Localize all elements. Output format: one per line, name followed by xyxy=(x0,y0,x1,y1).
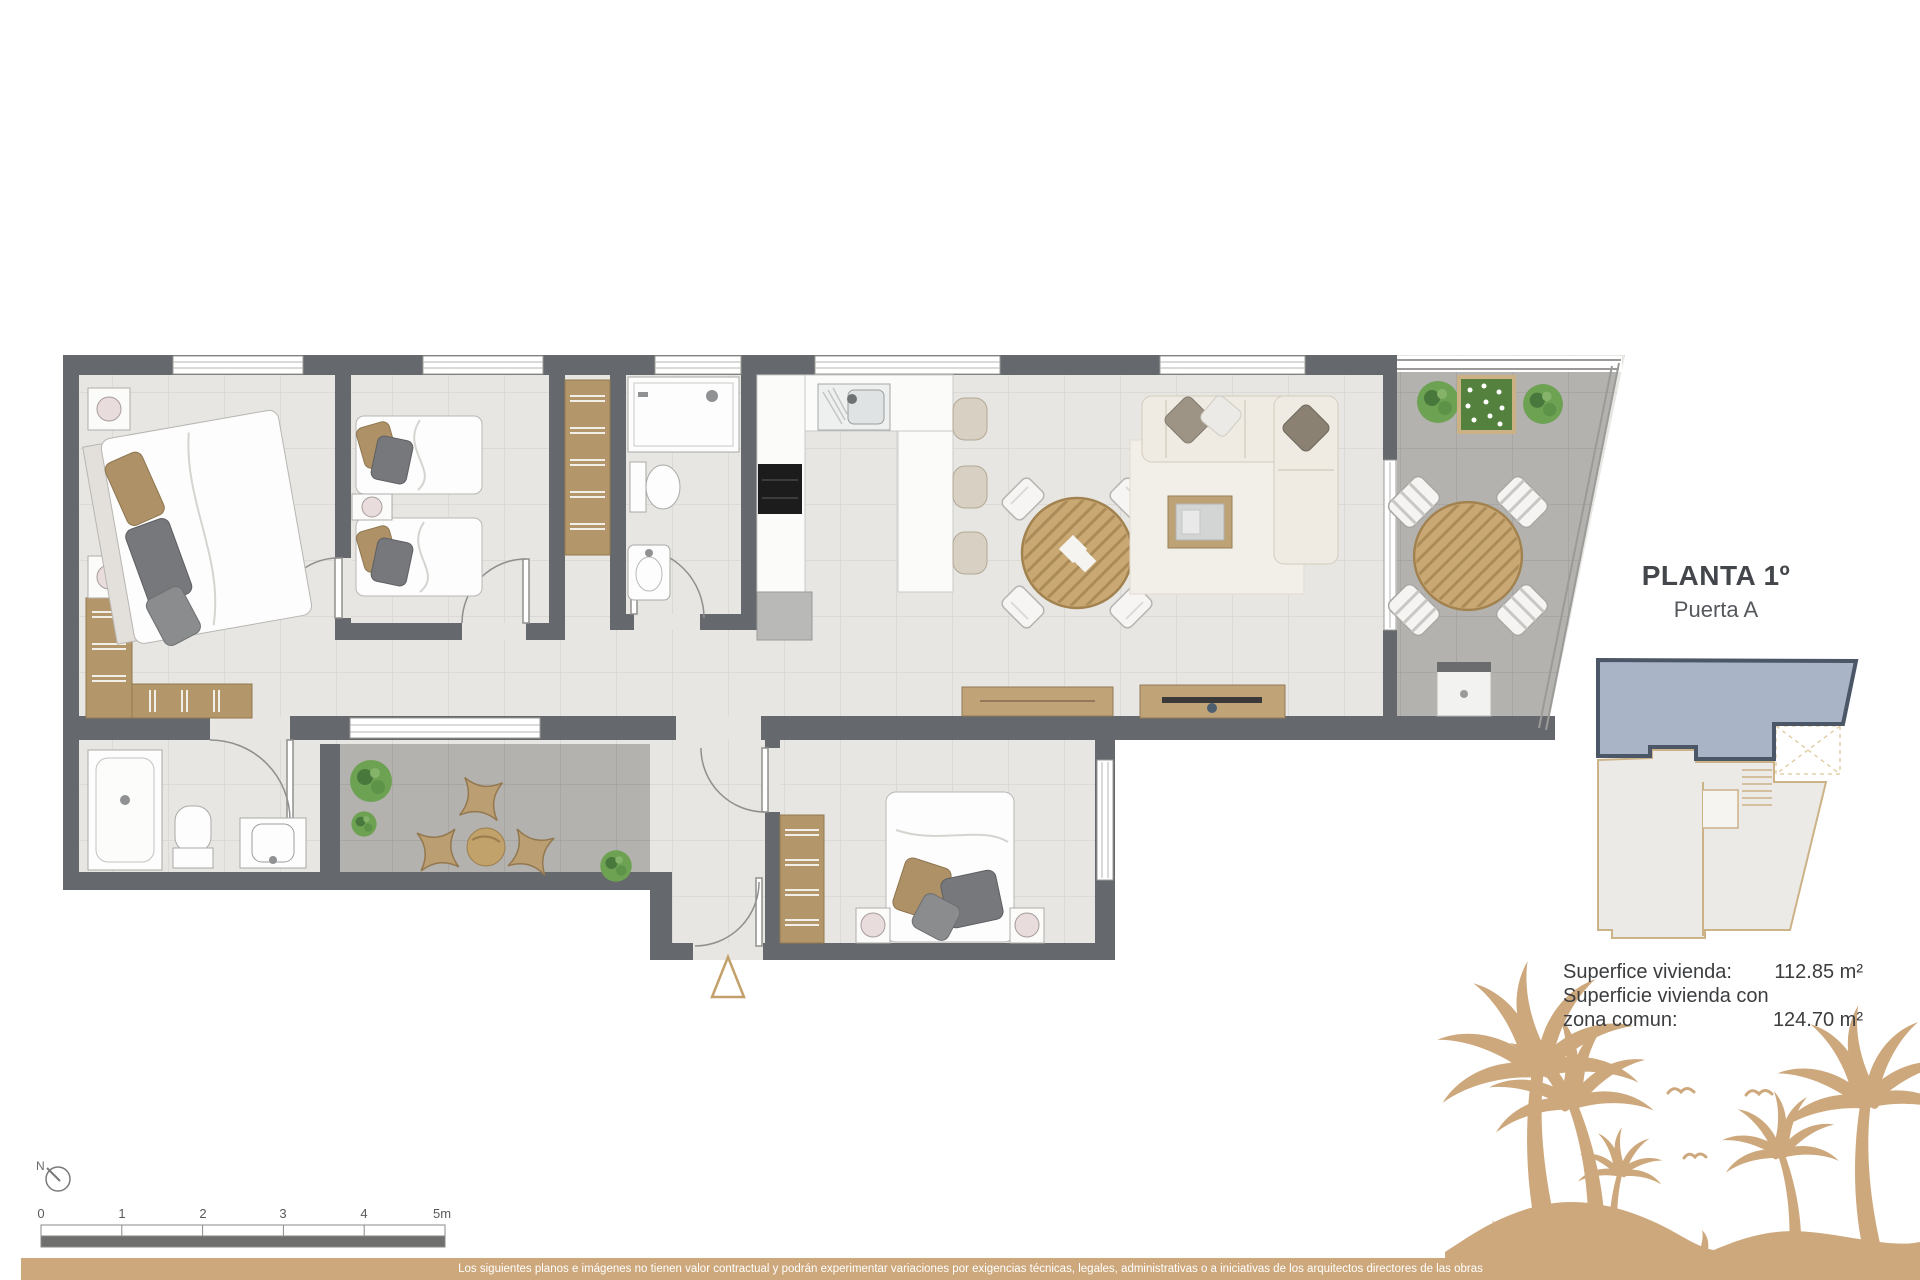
scale-label: 2 xyxy=(199,1206,206,1221)
page-subtitle: Puerta A xyxy=(1540,597,1892,623)
area-label: Superficie vivienda con xyxy=(1563,984,1769,1008)
wall-kitchen-left xyxy=(741,355,757,630)
bbq-cabinet-icon xyxy=(1437,662,1491,716)
entrance-triangle-icon xyxy=(712,957,744,997)
toilet-icon xyxy=(630,462,680,512)
plant-icon xyxy=(1417,381,1459,423)
north-compass-icon: N xyxy=(36,1159,70,1191)
wall-bottom-left xyxy=(63,872,672,890)
nightstand-icon xyxy=(856,908,890,943)
wall-terrace-top-jamb xyxy=(1383,363,1397,460)
coffee-table-icon xyxy=(1168,496,1232,548)
disclaimer-text: Los siguientes planos e imágenes no tien… xyxy=(21,1258,1920,1280)
nightstand-icon xyxy=(1010,908,1044,943)
area-label: Superfice vivienda: xyxy=(1563,960,1732,984)
wall-terrace-bottom-jamb xyxy=(1383,630,1397,740)
nightstand-icon xyxy=(352,494,392,520)
area-row: zona comun: 124.70 m² xyxy=(1563,1008,1863,1032)
page-title: PLANTA 1º xyxy=(1540,560,1892,592)
scale-label: 4 xyxy=(360,1206,367,1221)
wardrobe-icon xyxy=(780,815,824,943)
scale-label: 5m xyxy=(433,1206,451,1221)
stove-icon xyxy=(758,464,802,514)
plan-title-block: PLANTA 1º Puerta A xyxy=(1540,560,1892,623)
hall-closet-icon xyxy=(565,380,610,555)
wall-bed2-closet xyxy=(549,355,565,640)
sink-icon xyxy=(818,384,890,430)
area-value: 112.85 m² xyxy=(1774,960,1863,984)
palm-tree-icon xyxy=(1718,1086,1847,1257)
plant-icon xyxy=(600,850,632,882)
window xyxy=(655,356,741,374)
courtyard xyxy=(1776,726,1840,774)
bathtub-icon xyxy=(88,750,162,870)
area-value: 124.70 m² xyxy=(1773,1008,1863,1032)
single-bed-icon xyxy=(355,518,482,596)
window xyxy=(423,356,543,374)
window xyxy=(815,356,1000,374)
area-label: zona comun: xyxy=(1563,1008,1678,1032)
window xyxy=(173,356,303,374)
wall-left xyxy=(63,355,79,890)
area-row: Superfice vivienda: 112.85 m² xyxy=(1563,960,1863,984)
floorplan-canvas: N 0 1 2 3 4 5m xyxy=(0,0,1920,1280)
building-footprint xyxy=(1598,750,1826,938)
wall-living-bottom xyxy=(737,716,1555,740)
pouf-table-icon xyxy=(467,828,505,866)
wall-bed2-bottom xyxy=(343,623,565,640)
toilet-icon xyxy=(173,806,213,868)
bidet-icon xyxy=(628,545,670,600)
bar-stool-icon xyxy=(953,398,987,574)
area-row: Superficie vivienda con xyxy=(1563,984,1863,1008)
tv-unit-icon xyxy=(1140,685,1285,718)
hall-passage xyxy=(676,716,761,740)
double-bed-icon xyxy=(886,792,1014,943)
scale-labels: 0 1 2 3 4 5m xyxy=(37,1206,451,1221)
patio-glass-door xyxy=(350,718,540,738)
nightstand-icon xyxy=(88,388,130,430)
bedroom3-furniture xyxy=(780,792,1044,943)
single-bed-icon xyxy=(355,416,482,494)
wall-bath1-left xyxy=(610,355,626,630)
scale-label: 1 xyxy=(118,1206,125,1221)
wall-bath2-right xyxy=(320,744,340,890)
surface-area-info: Superfice vivienda: 112.85 m² Superficie… xyxy=(1563,960,1863,1032)
planter-box-icon xyxy=(1459,377,1514,432)
plant-icon xyxy=(1523,384,1563,424)
compass-n-label: N xyxy=(36,1159,45,1173)
sideboard-icon xyxy=(962,687,1113,716)
scale-label: 0 xyxy=(37,1206,44,1221)
plant-icon xyxy=(350,760,392,802)
scale-bar: 0 1 2 3 4 5m xyxy=(37,1206,451,1247)
kitchen-island xyxy=(898,431,953,592)
window xyxy=(1160,356,1305,374)
double-bed-icon xyxy=(82,409,315,657)
window-bedroom3 xyxy=(1097,760,1113,880)
plant-icon xyxy=(351,811,376,836)
kitchen-lower-cabinet xyxy=(757,592,812,640)
shower-icon xyxy=(628,377,739,452)
building-location-minimap xyxy=(1598,660,1856,938)
footer-disclaimer-bar: Los siguientes planos e imágenes no tien… xyxy=(21,1258,1920,1280)
scale-label: 3 xyxy=(279,1206,286,1221)
sink-icon xyxy=(240,818,306,868)
